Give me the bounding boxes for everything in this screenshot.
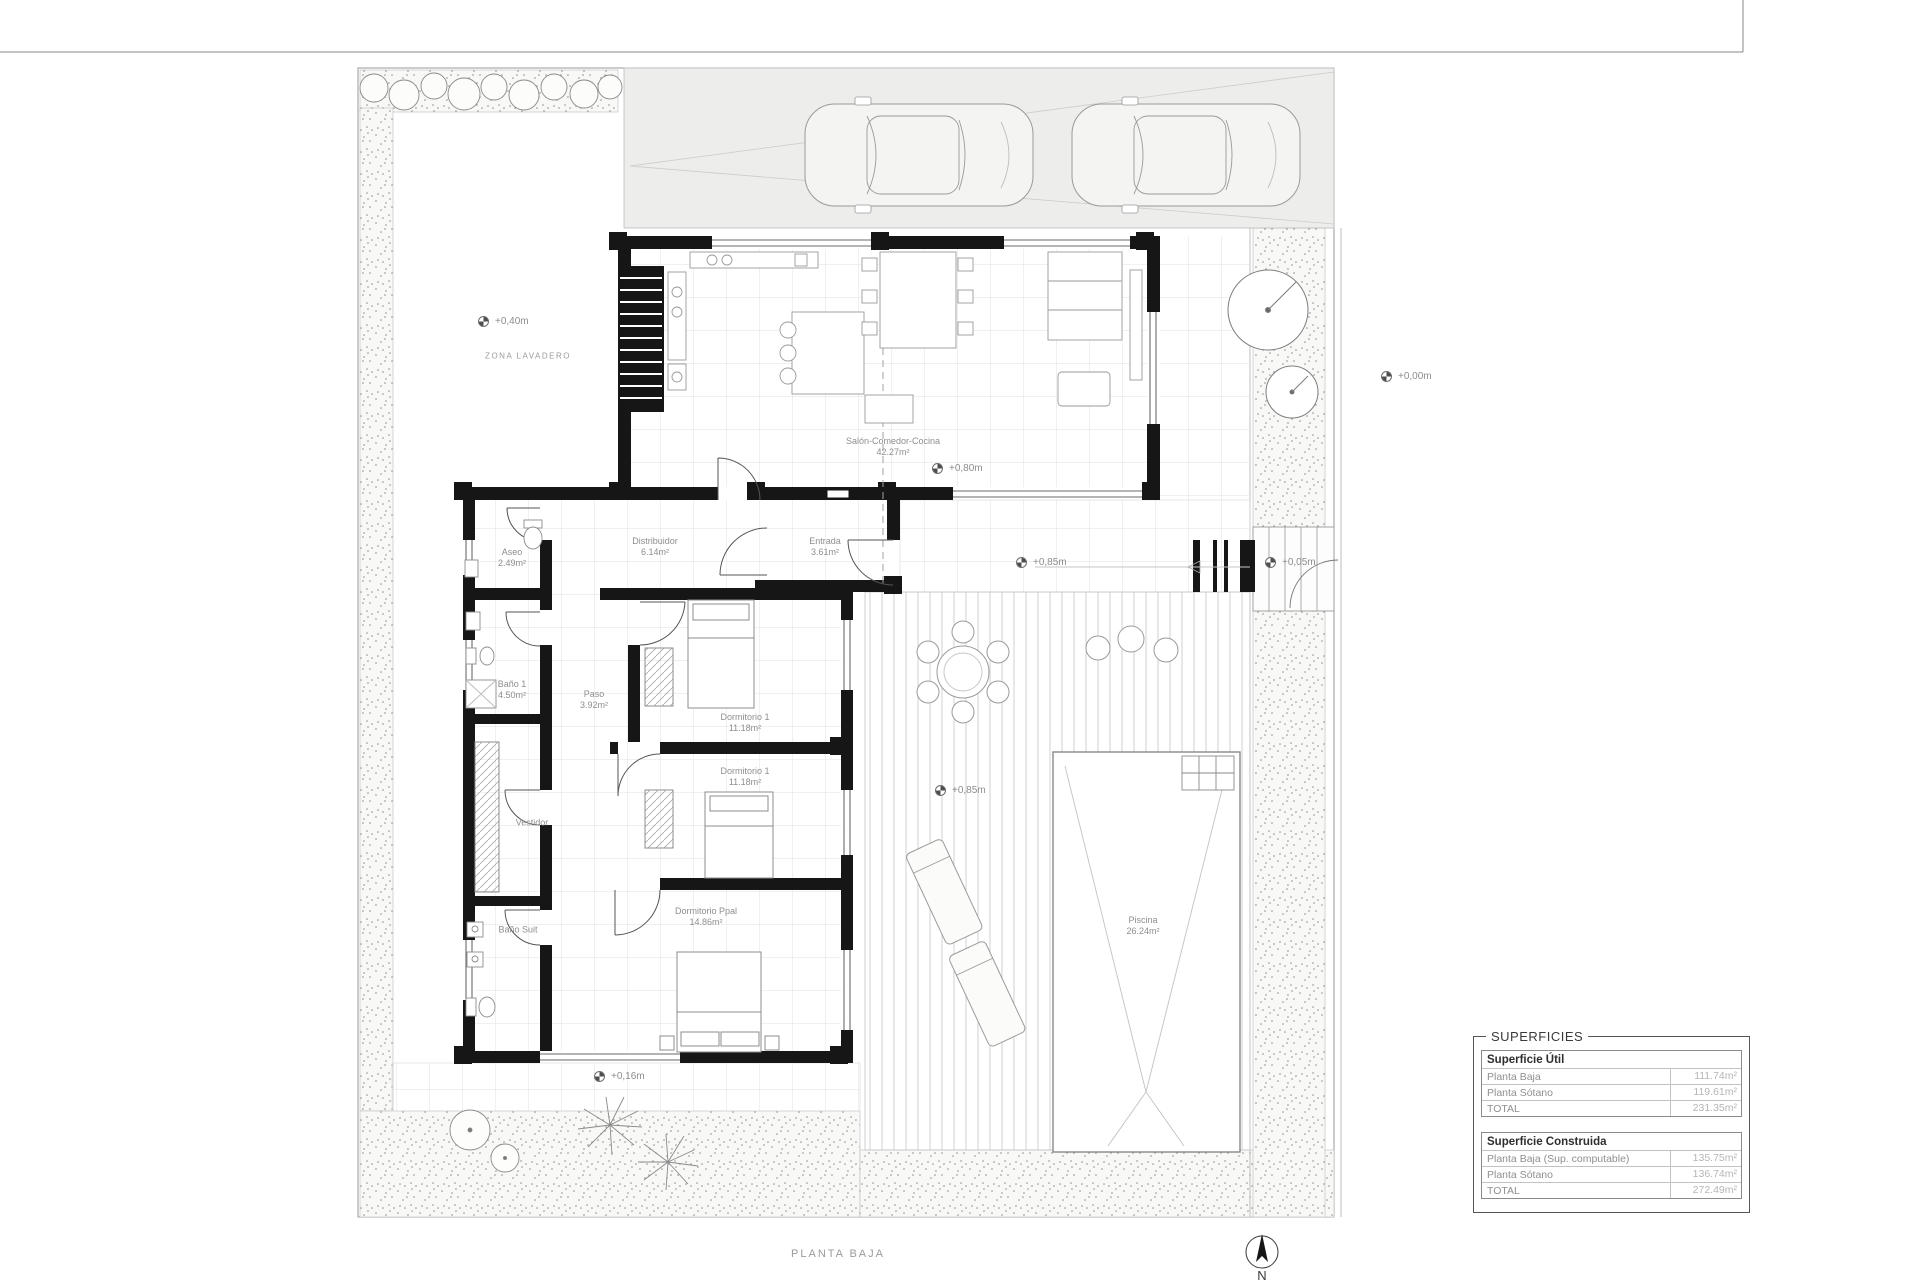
level-marker-000: +0,00m xyxy=(1381,371,1432,382)
room-label-dormitorio-ppal: Dormitorio Ppal14.86m² xyxy=(675,906,737,928)
room-area: 11.18m² xyxy=(729,723,761,733)
room-label-banio-1: Baño 14.50m² xyxy=(498,679,527,701)
room-label-salon: Salón-Comedor-Cocina42.27m² xyxy=(846,436,940,458)
room-label-entrada: Entrada3.61m² xyxy=(809,536,841,558)
section-header: Superficie Útil xyxy=(1482,1051,1741,1068)
row-value: 136.74m² xyxy=(1670,1167,1741,1182)
level-marker-080: +0,80m xyxy=(932,463,983,474)
staircase xyxy=(618,266,664,412)
room-label-distribuidor: Distribuidor6.14m² xyxy=(632,536,678,558)
table-row: Planta Sótano136.74m² xyxy=(1482,1166,1741,1182)
pool-ladder-icon xyxy=(1182,756,1234,790)
level-label: +0,16m xyxy=(611,1071,645,1082)
room-label-paso: Paso3.92m² xyxy=(580,689,608,711)
level-target-icon xyxy=(1381,371,1392,382)
row-label: TOTAL xyxy=(1482,1103,1670,1115)
row-value: 272.49m² xyxy=(1670,1183,1741,1198)
level-label: +0,05m xyxy=(1282,557,1316,568)
table-row: Planta Baja111.74m² xyxy=(1482,1068,1741,1084)
car-2 xyxy=(1072,97,1300,213)
room-area: 14.86m² xyxy=(689,917,722,927)
room-area: 26.24m² xyxy=(1126,926,1159,936)
room-name: Piscina xyxy=(1128,915,1157,925)
row-value: 111.74m² xyxy=(1670,1069,1741,1084)
level-marker-085-path: +0,85m xyxy=(1016,557,1067,568)
level-label: +0,80m xyxy=(949,463,983,474)
room-label-vestidor: Vestidor xyxy=(516,818,549,829)
room-label-dormitorio-1a: Dormitorio 111.18m² xyxy=(720,712,769,734)
room-name: Dormitorio 1 xyxy=(720,766,769,776)
level-marker-040: +0,40m xyxy=(478,316,529,327)
room-name: Vestidor xyxy=(516,818,549,828)
north-label: N xyxy=(1257,1268,1266,1280)
room-label-dormitorio-1b: Dormitorio 111.18m² xyxy=(720,766,769,788)
room-area: 3.92m² xyxy=(580,700,608,710)
room-name: Dormitorio 1 xyxy=(720,712,769,722)
entry-steps xyxy=(1253,527,1338,611)
level-label: +0,40m xyxy=(495,316,529,327)
room-name: Baño Suit xyxy=(498,925,537,935)
sheet-frame xyxy=(0,0,1743,52)
superficies-title: SUPERFICIES xyxy=(1486,1029,1588,1044)
room-name: Salón-Comedor-Cocina xyxy=(846,436,940,446)
level-target-icon xyxy=(478,316,489,327)
wall-pillar-inset xyxy=(828,491,848,497)
floor-plan-page: N Salón-Comedor-Cocina42.27m² Distribuid… xyxy=(0,0,1920,1280)
level-marker-016: +0,16m xyxy=(594,1071,645,1082)
row-value: 119.61m² xyxy=(1670,1085,1741,1100)
room-label-piscina: Piscina26.24m² xyxy=(1126,915,1159,937)
north-compass-icon: N xyxy=(1246,1234,1278,1280)
car-1 xyxy=(805,97,1033,213)
zona-lavadero-label: ZONA LAVADERO xyxy=(485,352,571,361)
level-label: +0,85m xyxy=(952,785,986,796)
table-row: Planta Sótano119.61m² xyxy=(1482,1084,1741,1100)
room-name: Distribuidor xyxy=(632,536,678,546)
room-name: Paso xyxy=(584,689,605,699)
row-value: 231.35m² xyxy=(1670,1101,1741,1116)
room-name: Baño 1 xyxy=(498,679,527,689)
room-name: Entrada xyxy=(809,536,841,546)
plan-title: PLANTA BAJA xyxy=(791,1248,885,1260)
level-target-icon xyxy=(1016,557,1027,568)
room-area: 4.50m² xyxy=(498,690,526,700)
room-area: 6.14m² xyxy=(641,547,669,557)
room-name: Aseo xyxy=(502,547,523,557)
level-target-icon xyxy=(935,785,946,796)
level-marker-085-terrace: +0,85m xyxy=(935,785,986,796)
table-row: TOTAL272.49m² xyxy=(1482,1182,1741,1198)
row-label: Planta Baja xyxy=(1482,1071,1670,1083)
room-name: Dormitorio Ppal xyxy=(675,906,737,916)
superficie-util-box: Superficie Útil Planta Baja111.74m² Plan… xyxy=(1481,1050,1742,1117)
section-header: Superficie Construida xyxy=(1482,1133,1741,1150)
row-label: TOTAL xyxy=(1482,1185,1670,1197)
row-label: Planta Sótano xyxy=(1482,1169,1670,1181)
level-target-icon xyxy=(932,463,943,474)
level-target-icon xyxy=(594,1071,605,1082)
room-area: 2.49m² xyxy=(498,558,526,568)
superficies-table: SUPERFICIES Superficie Útil Planta Baja1… xyxy=(1473,1036,1750,1213)
room-area: 42.27m² xyxy=(876,447,909,457)
superficie-construida-box: Superficie Construida Planta Baja (Sup. … xyxy=(1481,1132,1742,1199)
room-area: 11.18m² xyxy=(729,777,761,787)
row-value: 135.75m² xyxy=(1670,1151,1741,1166)
level-marker-005: +0,05m xyxy=(1265,557,1316,568)
table-row: TOTAL231.35m² xyxy=(1482,1100,1741,1116)
pool xyxy=(1053,752,1240,1152)
level-target-icon xyxy=(1265,557,1276,568)
row-label: Planta Sótano xyxy=(1482,1087,1670,1099)
room-area: 3.61m² xyxy=(811,547,839,557)
room-label-aseo: Aseo2.49m² xyxy=(498,547,526,569)
room-label-banio-suit: Baño Suit xyxy=(498,925,537,936)
table-row: Planta Baja (Sup. computable)135.75m² xyxy=(1482,1150,1741,1166)
row-label: Planta Baja (Sup. computable) xyxy=(1482,1153,1670,1165)
level-label: +0,00m xyxy=(1398,371,1432,382)
level-label: +0,85m xyxy=(1033,557,1067,568)
